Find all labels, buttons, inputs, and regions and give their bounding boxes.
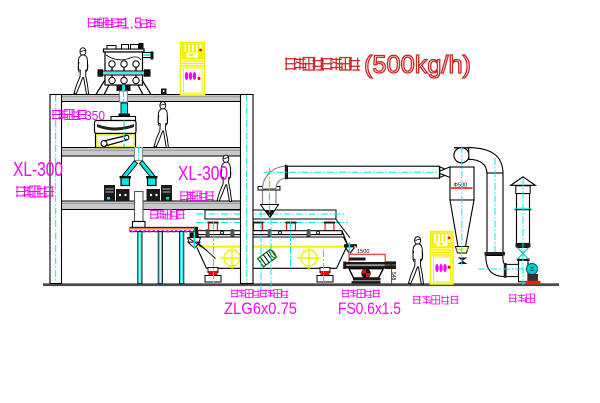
svg-text:1.5: 1.5 — [121, 16, 143, 33]
svg-text:350: 350 — [85, 108, 105, 123]
svg-text:(500kg/h): (500kg/h) — [364, 51, 471, 79]
svg-text:ZLG6x0.75: ZLG6x0.75 — [224, 299, 297, 318]
svg-text:1500: 1500 — [357, 249, 369, 255]
svg-text:548: 548 — [390, 272, 396, 281]
svg-text:XL-300: XL-300 — [178, 162, 228, 185]
svg-text:XL-300: XL-300 — [13, 158, 63, 181]
svg-text:FS0.6x1.5: FS0.6x1.5 — [338, 299, 401, 318]
